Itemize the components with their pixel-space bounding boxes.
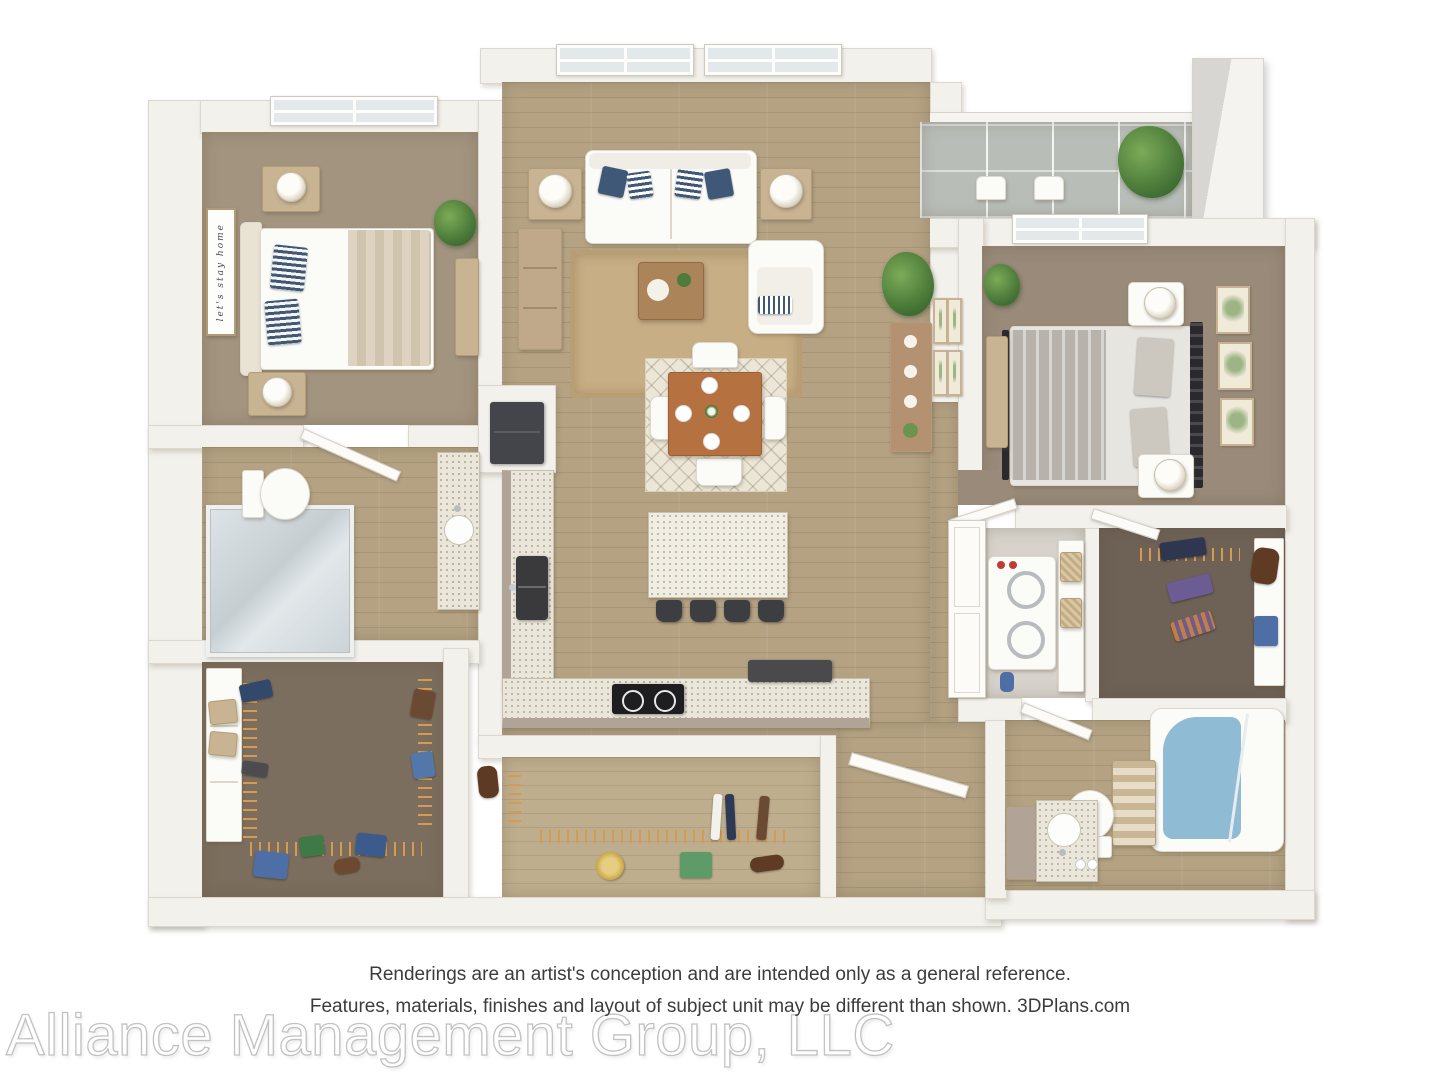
faucet [509, 584, 516, 591]
dining-table [668, 372, 762, 456]
soap-dispenser [1075, 859, 1086, 870]
closet1-garment-blue [410, 751, 435, 780]
gallery-frame [933, 298, 948, 344]
plate [703, 433, 720, 450]
dining-chair-right [764, 396, 786, 440]
island-stool [724, 600, 750, 622]
plate [675, 405, 692, 422]
refrigerator [490, 402, 544, 464]
soap-dispenser [1087, 859, 1098, 870]
storage-box [208, 731, 238, 757]
lamp-right [769, 174, 803, 208]
window-pane [560, 48, 624, 59]
frame-art [939, 304, 942, 338]
hall-console-table [890, 322, 932, 452]
window-pane [775, 62, 839, 73]
dryer-door [1007, 621, 1045, 659]
console-vase [904, 365, 917, 378]
armchair [748, 240, 824, 334]
detergent-bottle [1000, 672, 1014, 692]
bed2-lamp-bottom [1154, 459, 1186, 491]
bedroom2-art [1220, 398, 1254, 446]
door-panel [954, 613, 980, 693]
hallcloset-garment-brown [476, 765, 499, 799]
bed1-pillow [270, 244, 308, 291]
window-bedroom1 [270, 96, 438, 126]
kitchen-counter-south [502, 678, 870, 728]
bedroom2-art [1216, 286, 1250, 334]
wall-closet1-east [443, 648, 469, 905]
sofa-pillow-striped [674, 168, 704, 199]
bed1-duvet [348, 230, 431, 366]
window-pane [1016, 231, 1079, 241]
window-pane [1082, 231, 1145, 241]
frame-art [953, 304, 956, 338]
laundry-basket [1060, 598, 1082, 628]
console-greenery [903, 423, 918, 438]
frame-art [1222, 292, 1244, 328]
wall-corner-tall [1192, 58, 1264, 236]
armchair-pillow [758, 296, 792, 314]
frame-art [1226, 404, 1248, 440]
tv-console [518, 228, 562, 350]
window-pane [1016, 218, 1079, 228]
frame-art [939, 356, 942, 390]
window-living-left [556, 44, 694, 76]
washer-dryer-stack [988, 556, 1056, 670]
console-vase [904, 395, 917, 408]
island-stool [758, 600, 784, 622]
bath2-vanity-counter [1036, 800, 1098, 882]
sofa-cushion-split [670, 169, 672, 239]
bath1-vanity [437, 452, 480, 610]
bed1-lamp-bottom [262, 377, 292, 407]
washer-knob-red [1009, 561, 1017, 569]
closet2-blue-box [1254, 616, 1278, 646]
frame-art [1224, 348, 1246, 384]
wall-bedroom1-bath1-left [148, 425, 304, 449]
closet1-jeans [253, 850, 290, 879]
dining-chair-top [692, 342, 738, 368]
hall-closet-double-doors [948, 520, 986, 698]
bedroom1-plant [434, 200, 476, 246]
hallcloset-rail-left [508, 770, 521, 822]
wall-bath2-west [985, 720, 1007, 899]
bath1-sink [444, 515, 474, 545]
burner [622, 690, 644, 712]
green-storage-box [680, 852, 712, 878]
balcony-plant-large [1118, 126, 1184, 198]
bath2-faucet [1059, 849, 1066, 856]
wall-bedroom2-west [958, 218, 984, 472]
wall-outer-left [148, 100, 204, 927]
window-living-right [704, 44, 842, 76]
window-pane [708, 48, 772, 59]
bed2-duvet [1010, 330, 1106, 480]
window-pane [627, 48, 691, 59]
room-entry [836, 722, 985, 897]
bedroom2-plant [984, 264, 1020, 306]
window-pane [775, 48, 839, 59]
bed2-lamp-top [1144, 287, 1176, 319]
balcony-chair [1034, 176, 1064, 200]
toilet1-bowl [260, 468, 310, 520]
sofa-pillow-striped [626, 170, 653, 199]
shower-stall [206, 505, 354, 657]
console-vase [904, 335, 917, 348]
window-pane [356, 113, 435, 123]
coffee-plant [677, 273, 691, 287]
window-pane [708, 62, 772, 73]
bedroom1-dresser [455, 258, 479, 356]
washer-door [1007, 571, 1045, 609]
sink-divider [518, 586, 546, 588]
wall-sign-lets-stay-home: let's stay home [206, 208, 236, 336]
wall-outer-right [1285, 218, 1315, 920]
gallery-frame [947, 350, 962, 396]
coffee-tray [647, 279, 669, 301]
bathtub [1150, 708, 1284, 852]
disclaimer-line-2: Features, materials, finishes and layout… [0, 996, 1440, 1018]
bedroom2-dresser [986, 336, 1008, 448]
window-pane [274, 113, 353, 123]
floor-plan-page: let's stay home [0, 0, 1440, 1080]
window-pane [560, 62, 624, 73]
plate [733, 405, 750, 422]
hallcloset-rail [540, 830, 790, 843]
bedroom2-art [1218, 342, 1252, 390]
console-shelf-line [523, 307, 557, 309]
storage-box [208, 699, 238, 726]
bath1-faucet [454, 505, 461, 512]
island-stool [656, 600, 682, 622]
living-plant [882, 252, 934, 316]
wall-sign-text: let's stay home [216, 223, 226, 321]
balcony-chair [976, 176, 1006, 200]
towel-shelf [1112, 760, 1156, 846]
window-pane [356, 100, 435, 110]
wall-outer-bottom [148, 897, 1002, 927]
sofa-pillow-navy [704, 168, 734, 200]
lamp-left [538, 174, 572, 208]
shelf-line [210, 725, 238, 727]
wall-laundry-bottom [958, 698, 1022, 722]
bath2-sink [1047, 813, 1081, 847]
kitchen-island [648, 512, 788, 598]
wall-hallcloset-top [478, 735, 838, 759]
gallery-frame [947, 298, 962, 344]
room-hall-closet [502, 757, 820, 897]
frame-art [953, 356, 956, 390]
window-pane [627, 62, 691, 73]
bath2-vanity-cabinet [1006, 806, 1040, 880]
fridge-door-split [494, 431, 540, 433]
bed2-pillow [1134, 337, 1174, 397]
window-pane [1082, 218, 1145, 228]
laundry-basket [1060, 552, 1082, 582]
bed1-headboard [240, 222, 262, 376]
plate [701, 377, 718, 394]
cooktop [612, 684, 684, 714]
disclaimer-line-1: Renderings are an artist's conception an… [0, 964, 1440, 986]
coffee-table [638, 262, 704, 320]
tub-water [1163, 717, 1241, 839]
bed1-lamp-top [276, 172, 306, 202]
door-panel [954, 527, 980, 607]
washer-knob-red [997, 561, 1005, 569]
hat [596, 852, 624, 880]
wall-oven [748, 660, 832, 682]
closet1-garment-navy2 [355, 832, 387, 857]
sofa-back [589, 153, 751, 169]
window-bedroom2 [1012, 214, 1148, 244]
gallery-frame [933, 350, 948, 396]
console-shelf-line [523, 267, 557, 269]
centerpiece-flowers [705, 405, 718, 418]
dining-chair-bottom [696, 458, 742, 486]
kitchen-sink [516, 556, 548, 620]
window-pane [274, 100, 353, 110]
shelf-line [210, 781, 238, 783]
wall-outer-bottom-right [985, 890, 1315, 920]
island-stool [690, 600, 716, 622]
burner [654, 690, 676, 712]
closet1-garment-green [299, 834, 326, 857]
bed1-pillow [264, 299, 302, 346]
sofa [585, 150, 757, 244]
